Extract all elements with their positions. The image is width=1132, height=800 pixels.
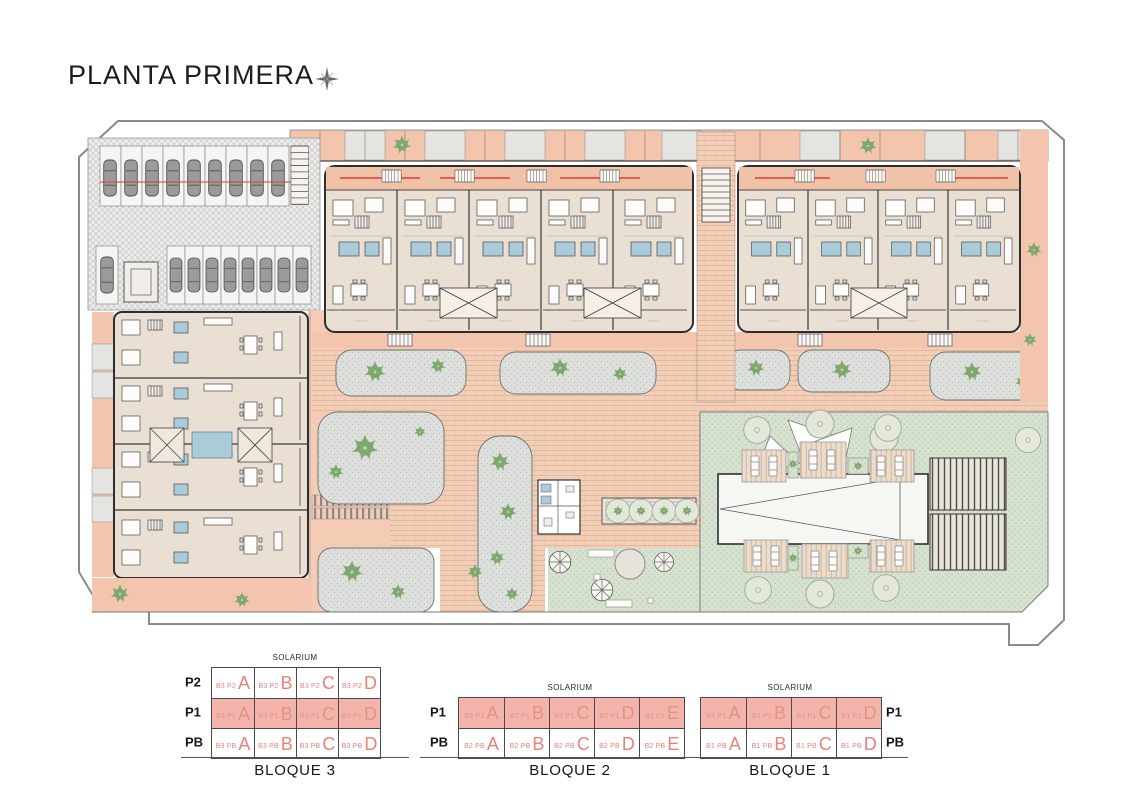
row-label-pb: PB: [185, 735, 203, 750]
floor-plan-page: { "title": "PLANTA PRIMERA", "compass": …: [0, 0, 1132, 800]
unit-cell[interactable]: B3 P2A: [212, 668, 254, 698]
car-icon: [206, 258, 218, 292]
parking-row-top: [100, 146, 300, 206]
bloque-3-name: BLOQUE 3: [254, 762, 335, 779]
ground-line: [420, 757, 700, 758]
pergola-deck: [930, 458, 1006, 570]
ground-line: [181, 757, 409, 758]
umbrella-icon: [654, 552, 673, 571]
bloque-1-name: BLOQUE 1: [749, 762, 830, 779]
unit-cell[interactable]: B2 P1D: [594, 698, 639, 728]
between-buildings-path: [697, 132, 735, 402]
unit-cell[interactable]: B1 PBA: [701, 728, 746, 758]
solarium-label: SOLARIUM: [273, 653, 318, 662]
bloque-1-building: [738, 166, 1020, 332]
car-icon: [146, 160, 159, 196]
bloque-3-grid: B3 P2A B3 P2B B3 P2C B3 P2D B3 P1A B3 P1…: [211, 667, 381, 759]
car-icon: [188, 258, 200, 292]
unit-cell[interactable]: B1 PBC: [791, 728, 836, 758]
solarium-label: SOLARIUM: [768, 683, 813, 692]
long-planter: [602, 498, 699, 524]
car-icon: [272, 160, 285, 196]
bloque-2-grid: B2 P1A B2 P1B B2 P1C B2 P1D B2 P1E B2 PB…: [458, 697, 685, 759]
unit-cell[interactable]: B3 P1B: [254, 698, 296, 728]
tree-icon: [1015, 427, 1040, 452]
car-icon: [224, 258, 236, 292]
row-label-p1: P1: [185, 705, 201, 720]
unit-cell[interactable]: B1 P1C: [791, 698, 836, 728]
umbrella-icon: [591, 579, 613, 601]
bloque-1-grid: B1 P1A B1 P1B B1 P1C B1 P1D B1 PBA B1 PB…: [700, 697, 882, 759]
unit-cell[interactable]: B1 PBB: [746, 728, 791, 758]
steps-icon: [798, 334, 822, 346]
row-label-pb: PB: [430, 735, 448, 750]
unit-cell[interactable]: B3 P1D: [338, 698, 380, 728]
terrace-void: [851, 288, 907, 318]
car-icon: [278, 258, 290, 292]
spa-circle: [615, 549, 645, 579]
solarium-label: SOLARIUM: [548, 683, 593, 692]
car-icon: [188, 160, 201, 196]
car-icon: [170, 258, 182, 292]
steps-icon: [526, 334, 550, 346]
steps-icon: [388, 334, 412, 346]
unit-cell[interactable]: B3 P1A: [212, 698, 254, 728]
unit-cell[interactable]: B2 PBD: [594, 728, 639, 758]
row-label-p1: P1: [430, 705, 446, 720]
unit-cell[interactable]: B1 P1D: [836, 698, 881, 728]
unit-cell[interactable]: B3 PBB: [254, 728, 296, 758]
bench: [588, 550, 614, 557]
right-terrace-strip: [1020, 130, 1048, 402]
unit-cell[interactable]: B2 PBC: [549, 728, 594, 758]
pool-area: [700, 410, 1048, 612]
legend-bloque-3: SOLARIUM P2 P1 PB B3 P2A B3 P2B B3 P2C B…: [185, 650, 425, 780]
stairs-icon: [291, 146, 308, 204]
unit-cell[interactable]: B3 P1C: [296, 698, 338, 728]
top-terrace-band: [290, 130, 1048, 161]
bathroom-core: [192, 432, 232, 458]
unit-cell[interactable]: B1 P1B: [746, 698, 791, 728]
car-icon: [296, 258, 308, 292]
unit-cell[interactable]: B2 PBB: [504, 728, 549, 758]
car-icon: [101, 257, 114, 293]
car-icon: [167, 160, 180, 196]
unit-cell[interactable]: B3 PBC: [296, 728, 338, 758]
unit-cell[interactable]: B2 P1C: [549, 698, 594, 728]
unit-cell[interactable]: B1 PBD: [836, 728, 881, 758]
unit-cell[interactable]: B3 PBA: [212, 728, 254, 758]
legend-bloque-1: SOLARIUM B1 P1A B1 P1B B1 P1C B1 P1D B1 …: [678, 680, 918, 780]
unit-cell[interactable]: B3 P2C: [296, 668, 338, 698]
bench: [606, 600, 632, 607]
car-icon: [242, 258, 254, 292]
crosswalk: [312, 508, 394, 519]
ground-line: [682, 757, 908, 758]
legend-bloque-2: SOLARIUM P1 PB B2 P1A B2 P1B B2 P1C B2 P…: [420, 680, 710, 780]
steps-icon: [928, 334, 952, 346]
row-label-p2: P2: [185, 675, 201, 690]
site-plan: [0, 0, 1132, 680]
bloque-2-name: BLOQUE 2: [529, 762, 610, 779]
unit-cell[interactable]: B1 P1A: [701, 698, 746, 728]
car-icon: [104, 160, 117, 196]
elevator: [124, 262, 158, 302]
row-label-p1: P1: [886, 705, 902, 720]
unit-cell[interactable]: B2 P1B: [504, 698, 549, 728]
unit-cell[interactable]: B3 P2D: [338, 668, 380, 698]
row-label-pb: PB: [886, 735, 904, 750]
wc-block: [538, 480, 580, 534]
car-icon: [260, 258, 272, 292]
umbrella-icon: [549, 551, 571, 573]
stairs-icon: [702, 168, 730, 222]
bloque-2-building: [325, 166, 693, 332]
spa-lawn: [548, 548, 700, 612]
car-icon: [125, 160, 138, 196]
unit-cell[interactable]: B2 P1A: [459, 698, 504, 728]
car-icon: [209, 160, 222, 196]
unit-cell[interactable]: B2 PBA: [459, 728, 504, 758]
unit-cell[interactable]: B3 PBD: [338, 728, 380, 758]
parking-area: [88, 138, 320, 310]
unit-cell[interactable]: B3 P2B: [254, 668, 296, 698]
car-icon: [251, 160, 264, 196]
pool: [718, 474, 928, 544]
car-icon: [230, 160, 243, 196]
